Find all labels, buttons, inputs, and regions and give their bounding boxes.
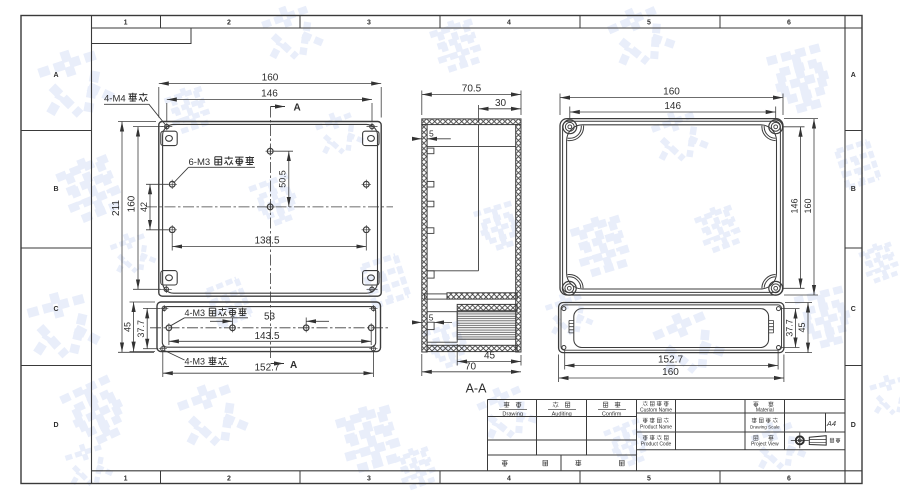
svg-text:4-M4: 4-M4 [104, 94, 126, 105]
svg-text:160: 160 [803, 198, 813, 213]
svg-text:5: 5 [647, 20, 651, 27]
svg-text:C: C [53, 306, 58, 313]
svg-text:152.7: 152.7 [658, 355, 683, 366]
svg-text:160: 160 [662, 367, 679, 378]
svg-text:Confirm: Confirm [602, 411, 622, 417]
svg-text:70.5: 70.5 [462, 84, 482, 95]
svg-text:D: D [851, 422, 856, 429]
svg-text:A-A: A-A [466, 382, 488, 396]
svg-text:4-M3: 4-M3 [185, 308, 206, 318]
svg-text:4-M3: 4-M3 [185, 357, 206, 367]
svg-text:1: 1 [124, 20, 128, 27]
svg-text:4: 4 [507, 20, 511, 27]
svg-text:160: 160 [262, 73, 279, 84]
svg-text:1: 1 [124, 476, 128, 483]
svg-text:5: 5 [429, 312, 434, 322]
svg-text:Product Code: Product Code [641, 442, 672, 448]
svg-text:146: 146 [261, 89, 278, 100]
svg-text:5: 5 [429, 129, 434, 139]
svg-text:138.5: 138.5 [254, 236, 279, 247]
svg-text:146: 146 [664, 101, 681, 112]
svg-text:A: A [53, 72, 58, 79]
svg-text:70: 70 [465, 361, 477, 372]
svg-text:45: 45 [484, 351, 496, 362]
svg-text:Project View: Project View [751, 442, 779, 448]
svg-text:Drawing Scale: Drawing Scale [750, 424, 780, 429]
svg-text:45: 45 [797, 322, 807, 332]
svg-text:37.7: 37.7 [784, 319, 794, 337]
svg-text:6: 6 [787, 20, 791, 27]
svg-text:Auditing: Auditing [552, 411, 572, 417]
svg-text:D: D [53, 422, 58, 429]
svg-text:5: 5 [647, 476, 651, 483]
svg-text:A4: A4 [826, 419, 836, 428]
svg-text:146: 146 [789, 198, 799, 213]
svg-text:2: 2 [227, 476, 231, 483]
svg-text:A: A [290, 360, 297, 371]
svg-text:6: 6 [787, 476, 791, 483]
svg-text:3: 3 [367, 476, 371, 483]
svg-text:37.7: 37.7 [136, 320, 146, 338]
svg-text:160: 160 [127, 195, 138, 212]
svg-text:160: 160 [663, 87, 680, 98]
svg-text:152.7: 152.7 [254, 362, 279, 373]
svg-text:3: 3 [367, 20, 371, 27]
svg-text:A: A [294, 103, 301, 114]
svg-text:Product Name: Product Name [640, 424, 672, 430]
svg-text:143.5: 143.5 [254, 331, 279, 342]
svg-text:53: 53 [264, 312, 276, 323]
svg-text:Drawing: Drawing [502, 411, 523, 417]
svg-text:42: 42 [139, 202, 149, 212]
svg-text:Custom Name: Custom Name [640, 408, 672, 414]
svg-text:6-M3: 6-M3 [189, 157, 211, 168]
svg-text:45: 45 [122, 322, 132, 332]
svg-text:2: 2 [227, 20, 231, 27]
svg-text:50.5: 50.5 [277, 170, 287, 188]
svg-text:4: 4 [507, 476, 511, 483]
svg-text:211: 211 [111, 200, 122, 216]
svg-text:30: 30 [495, 98, 507, 109]
svg-text:A: A [851, 72, 856, 79]
svg-text:B: B [53, 186, 58, 193]
svg-text:B: B [851, 186, 856, 193]
svg-text:Material: Material [756, 408, 774, 414]
svg-text:C: C [851, 306, 856, 313]
